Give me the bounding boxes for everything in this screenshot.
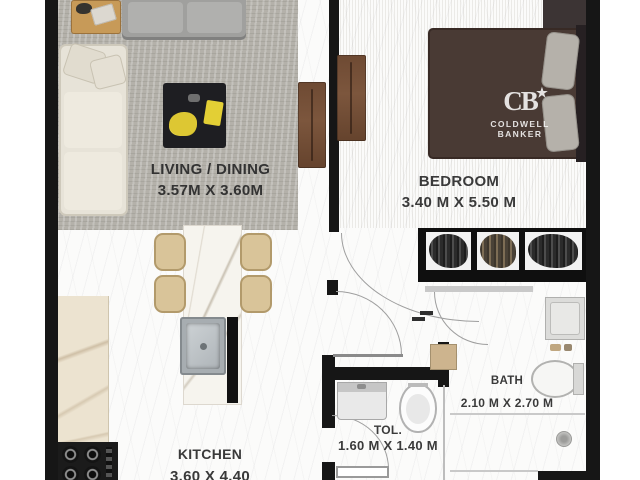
sofa-cream-seat bbox=[64, 92, 122, 148]
bath-floor-line2 bbox=[450, 470, 538, 472]
wall-bottom-right bbox=[538, 471, 600, 480]
living-room-dims: 3.57M X 3.60M bbox=[128, 180, 293, 201]
wardrobe-clothes bbox=[480, 234, 516, 268]
stove-knobs bbox=[106, 447, 112, 477]
bath-name: BATH bbox=[446, 375, 568, 388]
logo-star-icon: ★ bbox=[536, 80, 548, 106]
sofa-gray-cushion bbox=[128, 2, 183, 33]
counter-dark-strip bbox=[227, 317, 238, 403]
kitchen-label: KITCHEN 3.60 X 4.40 bbox=[140, 445, 280, 480]
table-item bbox=[188, 94, 200, 102]
bedroom-label: BEDROOM 3.40 M X 5.50 M bbox=[382, 171, 536, 213]
bottom-door-leaf bbox=[336, 466, 389, 478]
bath-dims: 2.10 M X 2.70 M bbox=[446, 397, 568, 410]
logo-name-line2: BANKER bbox=[486, 129, 554, 139]
flower-decor bbox=[169, 112, 197, 136]
kitchen-chair bbox=[154, 233, 186, 271]
toiletries bbox=[550, 344, 561, 351]
toilet-wc-bowl bbox=[406, 394, 430, 424]
coldwell-banker-logo: CB★ COLDWELL BANKER bbox=[486, 88, 554, 139]
sink-drain bbox=[200, 343, 207, 350]
stove-burner bbox=[84, 466, 101, 480]
kitchen-chair bbox=[240, 275, 272, 313]
side-table-decor bbox=[76, 3, 92, 14]
wall-left bbox=[45, 0, 58, 480]
floor-plan: CB★ COLDWELL BANKER bbox=[0, 0, 640, 480]
floor-drain bbox=[556, 431, 572, 447]
door-panel-right bbox=[337, 55, 366, 141]
kitchen-dims: 3.60 X 4.40 bbox=[140, 467, 280, 480]
toiletries bbox=[564, 344, 572, 351]
living-room-label: LIVING / DINING 3.57M X 3.60M bbox=[128, 159, 293, 201]
toilet-name: TOL. bbox=[326, 423, 450, 437]
stove-burner bbox=[62, 446, 79, 463]
wall-toilet-top bbox=[333, 367, 440, 380]
toilet-dims: 1.60 M X 1.40 M bbox=[326, 439, 450, 453]
logo-name-line1: COLDWELL bbox=[486, 119, 554, 129]
door-panel-left bbox=[298, 82, 326, 168]
bath-label: BATH 2.10 M X 2.70 M bbox=[446, 375, 568, 410]
sofa-cream-seat bbox=[64, 152, 122, 210]
toilet-wc-hinge bbox=[408, 383, 428, 387]
kitchen-name: KITCHEN bbox=[140, 445, 280, 464]
washbasin-faucet bbox=[357, 384, 366, 389]
bath-toilet-tank bbox=[573, 363, 584, 395]
stove-burner bbox=[84, 446, 101, 463]
stove-burner bbox=[62, 466, 79, 480]
bedroom-dims: 3.40 M X 5.50 M bbox=[382, 192, 536, 213]
living-room-name: LIVING / DINING bbox=[128, 159, 293, 180]
logo-monogram: CB★ bbox=[503, 88, 537, 114]
step-icon bbox=[420, 311, 433, 315]
bath-floor-line bbox=[450, 413, 585, 415]
step-icon bbox=[412, 317, 425, 321]
sofa-gray-cushion bbox=[187, 2, 242, 33]
toilet-label: TOL. 1.60 M X 1.40 M bbox=[326, 423, 450, 453]
kitchen-chair bbox=[154, 275, 186, 313]
wall-right bbox=[586, 0, 600, 480]
vanity-cabinet bbox=[430, 344, 457, 370]
toilet-door-leaf bbox=[333, 354, 403, 357]
shower-tray-inner bbox=[550, 302, 580, 335]
kitchen-chair bbox=[240, 233, 272, 271]
bedroom-name: BEDROOM bbox=[382, 171, 536, 192]
